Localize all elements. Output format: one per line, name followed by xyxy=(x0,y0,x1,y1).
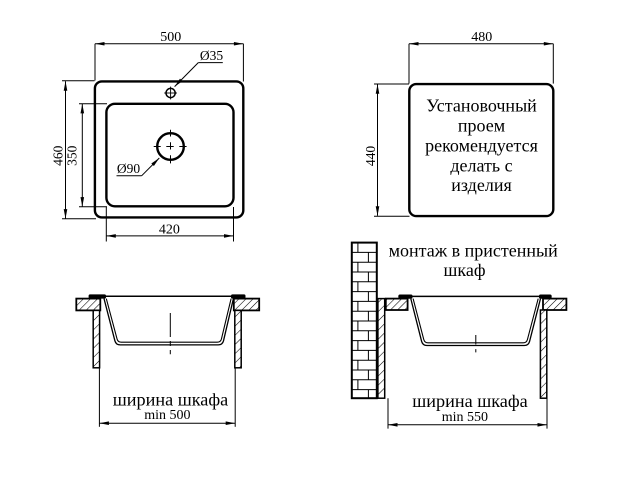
svg-text:Установочный: Установочный xyxy=(426,95,537,115)
svg-text:Ø35: Ø35 xyxy=(200,48,223,63)
svg-text:min 500: min 500 xyxy=(144,408,190,423)
svg-text:min 550: min 550 xyxy=(442,410,488,425)
svg-text:420: 420 xyxy=(159,222,180,237)
svg-text:ширина шкафа: ширина шкафа xyxy=(113,390,228,410)
svg-text:500: 500 xyxy=(160,30,181,45)
svg-text:460: 460 xyxy=(51,145,66,166)
svg-text:440: 440 xyxy=(363,146,378,167)
svg-text:изделия: изделия xyxy=(451,175,511,195)
svg-text:делать с: делать с xyxy=(450,156,512,176)
svg-text:рекомендуется: рекомендуется xyxy=(425,135,538,155)
svg-text:проем: проем xyxy=(458,115,505,135)
svg-text:монтаж в пристенный: монтаж в пристенный xyxy=(389,241,559,261)
svg-text:350: 350 xyxy=(65,145,80,166)
svg-text:ширина шкафа: ширина шкафа xyxy=(412,391,527,411)
svg-text:480: 480 xyxy=(471,30,492,45)
svg-text:шкаф: шкаф xyxy=(444,260,486,280)
svg-text:Ø90: Ø90 xyxy=(117,161,140,176)
